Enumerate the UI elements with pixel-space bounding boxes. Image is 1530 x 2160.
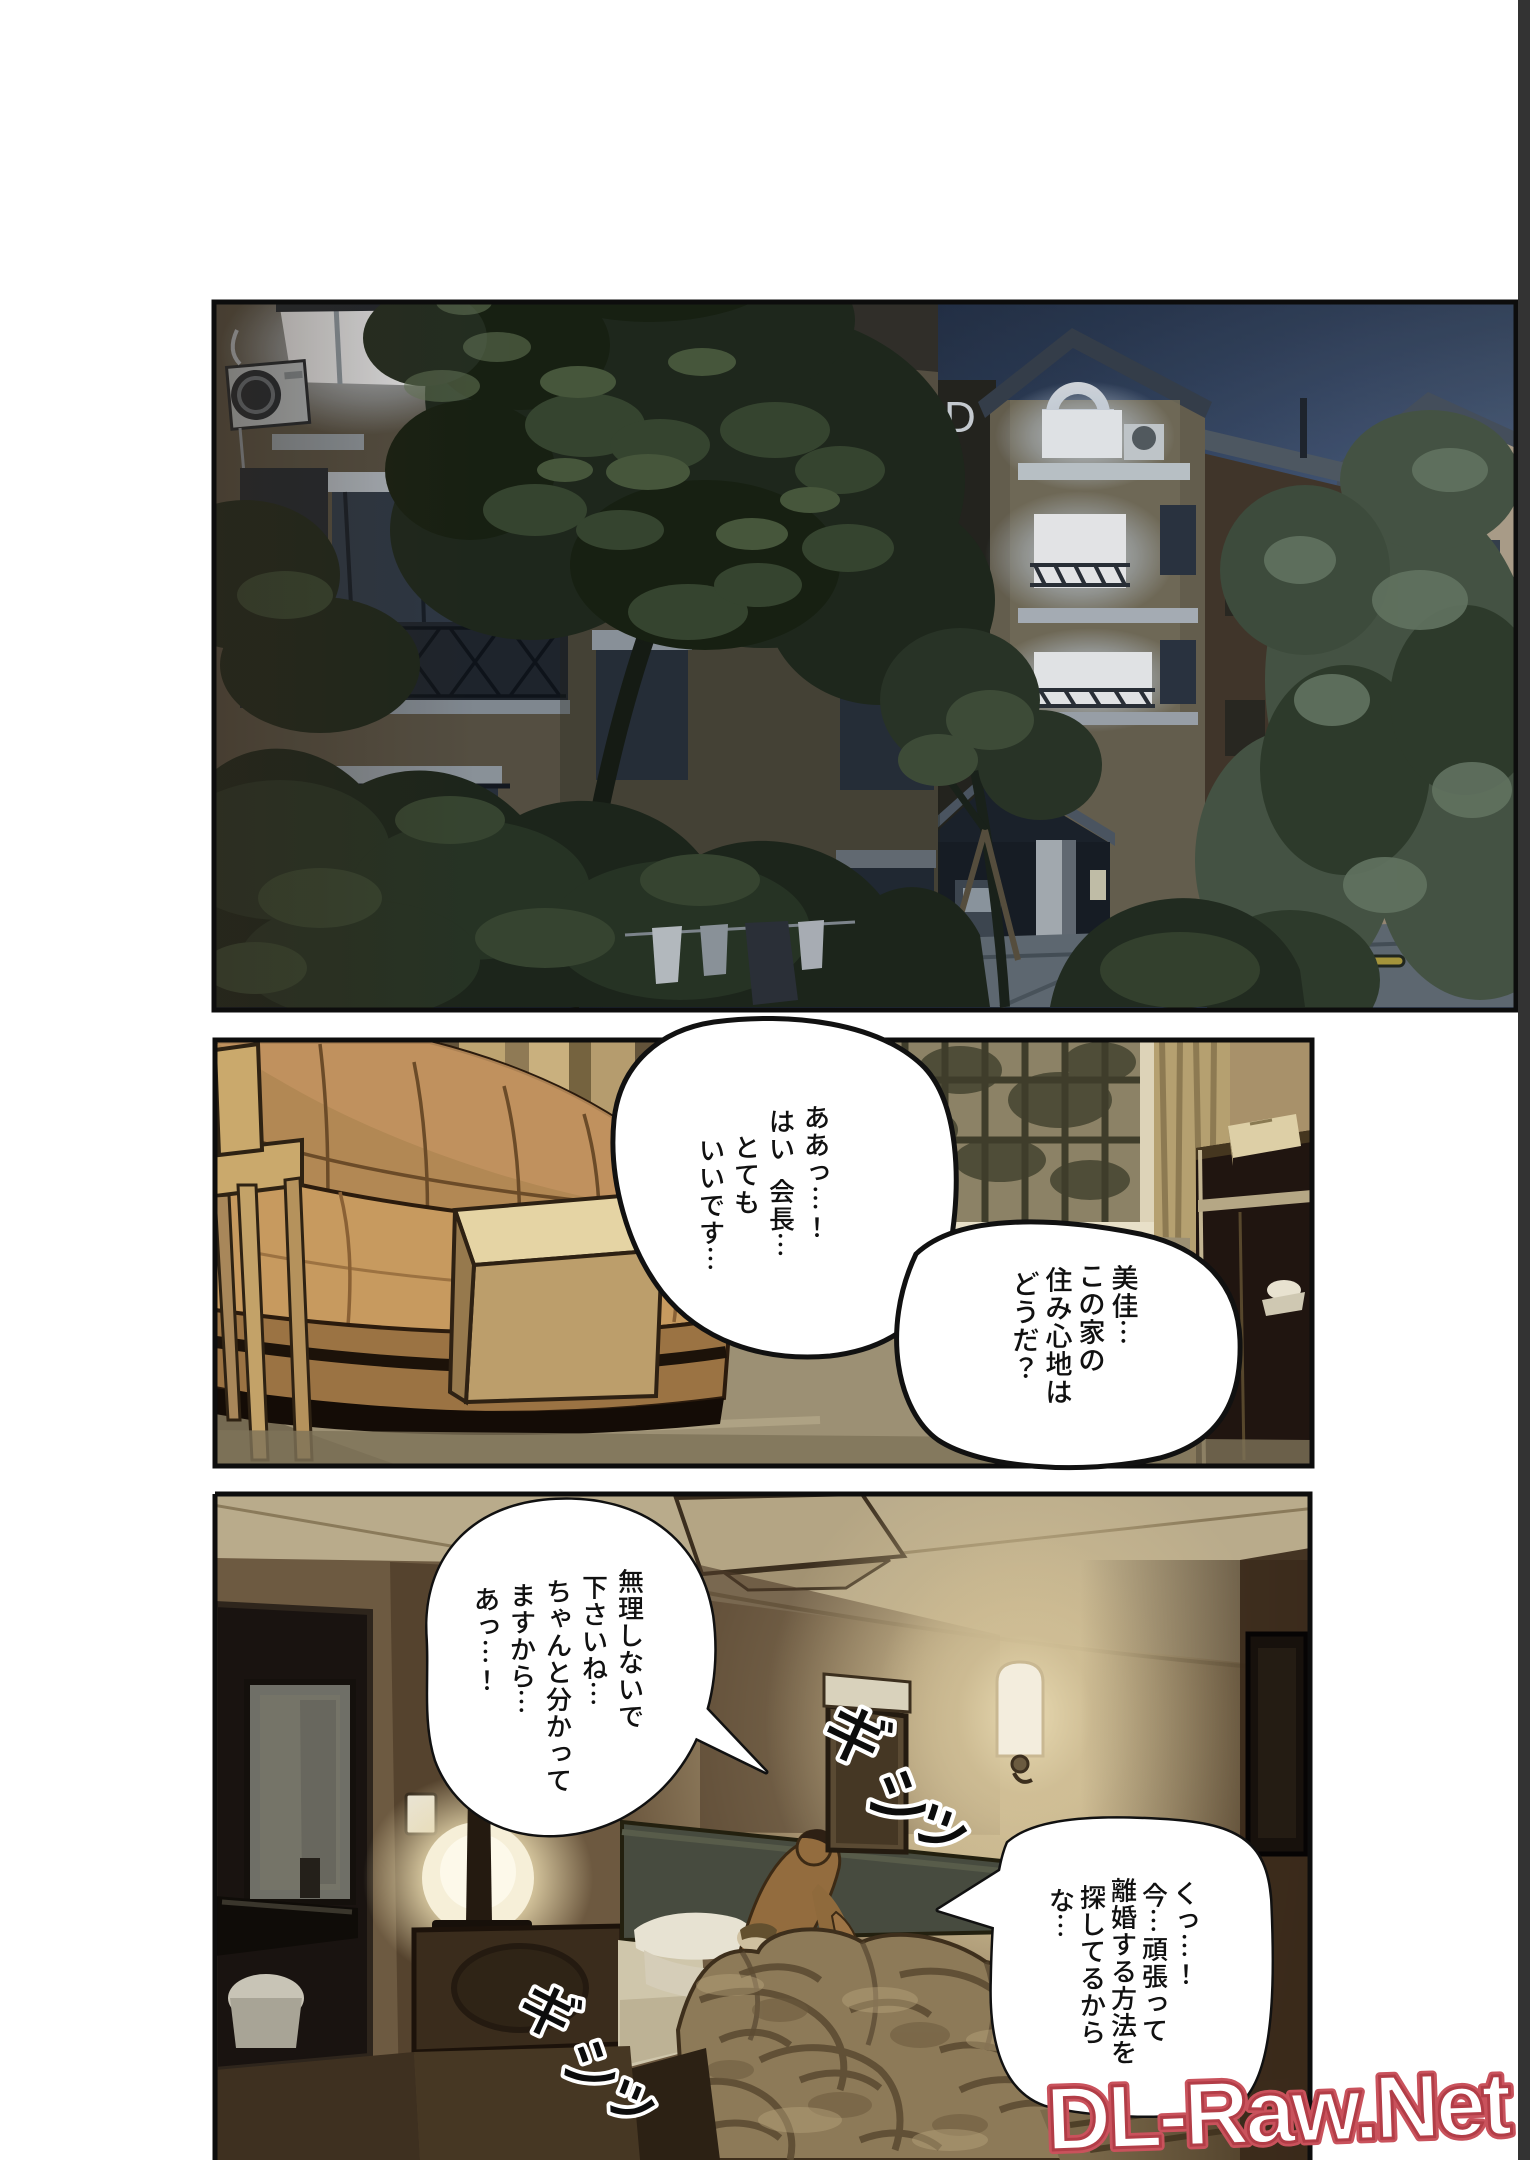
svg-text:DL-Raw.Net: DL-Raw.Net bbox=[1044, 2054, 1512, 2160]
